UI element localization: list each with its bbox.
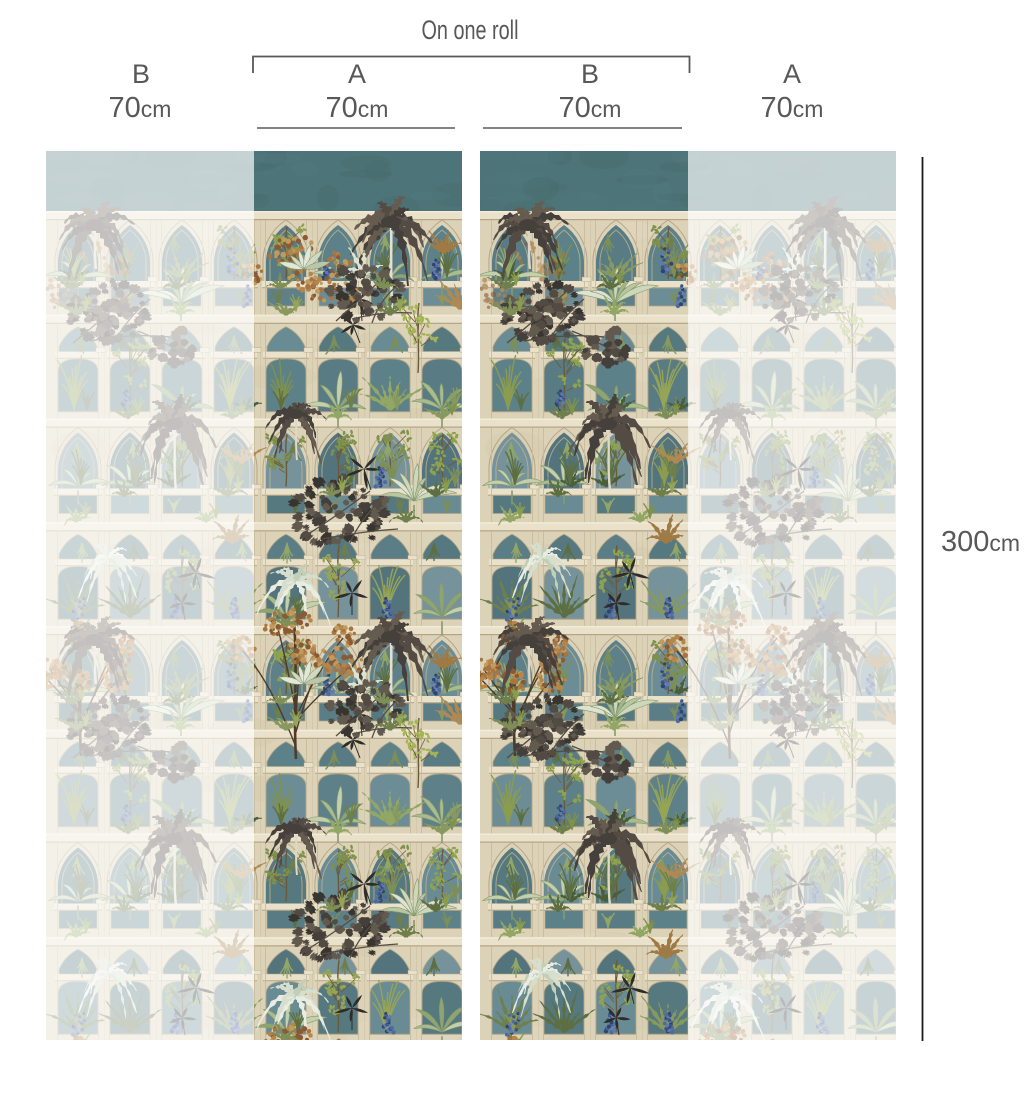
svg-text:A: A [783, 59, 801, 89]
svg-text:70cm: 70cm [761, 92, 824, 124]
svg-text:70cm: 70cm [326, 92, 389, 124]
svg-text:70cm: 70cm [559, 92, 622, 124]
svg-text:B: B [581, 59, 599, 89]
svg-text:B: B [132, 59, 150, 89]
svg-text:300cm: 300cm [941, 526, 1020, 558]
svg-text:On one roll: On one roll [422, 15, 519, 45]
svg-text:A: A [348, 59, 366, 89]
svg-text:70cm: 70cm [109, 92, 172, 124]
